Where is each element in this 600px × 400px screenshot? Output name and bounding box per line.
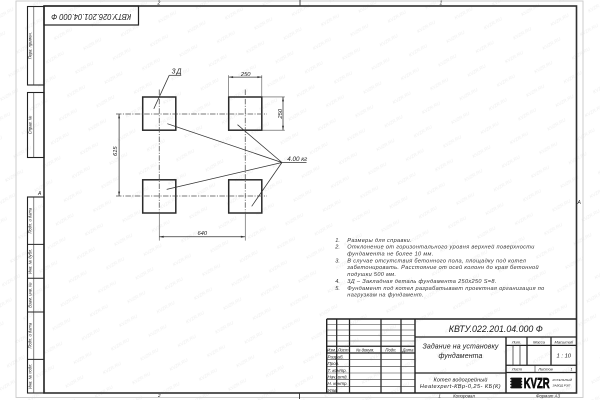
svg-text:Изм.: Изм. (327, 348, 336, 353)
svg-text:Лит.: Лит. (511, 339, 521, 344)
svg-text:№ докум.: № докум. (356, 348, 374, 353)
svg-text:Копировал: Копировал (453, 393, 475, 398)
svg-text:В случае отсутствия бетонного: В случае отсутствия бетонного пола, площ… (347, 258, 527, 264)
svg-text:KVZR: KVZR (524, 376, 550, 392)
svg-text:1 : 10: 1 : 10 (557, 354, 572, 360)
svg-text:2: 2 (157, 393, 161, 398)
svg-text:3Д – Закладная деталь фундамен: 3Д – Закладная деталь фундамента 250х250… (347, 279, 496, 285)
svg-text:Подп. и дата: Подп. и дата (28, 322, 33, 348)
svg-text:250: 250 (240, 72, 251, 78)
svg-text:КОТЕЛЬНЫЙ: КОТЕЛЬНЫЙ (553, 378, 573, 382)
svg-text:фундамента: фундамента (439, 352, 483, 360)
svg-text:Подп.: Подп. (385, 348, 396, 353)
svg-text:1: 1 (440, 1, 443, 7)
svg-text:Формат А3: Формат А3 (536, 393, 561, 398)
svg-text:3Д: 3Д (172, 68, 183, 75)
svg-text:фундамента не более 10 мм.: фундамента не более 10 мм. (347, 252, 433, 258)
svg-text:2: 2 (157, 1, 161, 7)
svg-text:Дата: Дата (401, 348, 414, 353)
svg-text:А: А (577, 200, 582, 206)
svg-text:Лист: Лист (337, 348, 349, 353)
svg-text:Котел водогрейный: Котел водогрейный (433, 376, 487, 383)
svg-text:Т. контр.: Т. контр. (328, 368, 347, 373)
svg-text:Пров.: Пров. (328, 361, 340, 366)
svg-text:Масштаб: Масштаб (554, 339, 573, 344)
svg-text:нагрузкам на фундамент.: нагрузкам на фундамент. (347, 293, 424, 299)
svg-text:4.00 кг: 4.00 кг (287, 156, 307, 163)
svg-text:Фундамент под котел разрабатыв: Фундамент под котел разрабатывает проект… (347, 286, 544, 292)
svg-text:Листов: Листов (537, 367, 553, 372)
svg-text:забетонировать. Расстояние от: забетонировать. Расстояние от осей колон… (346, 264, 539, 271)
svg-text:КВТУ.022.201.04.000 Ф: КВТУ.022.201.04.000 Ф (449, 324, 543, 334)
svg-text:Утв.: Утв. (328, 388, 338, 393)
svg-text:1.: 1. (335, 238, 340, 244)
svg-text:ЗАВОД РЭП: ЗАВОД РЭП (553, 384, 572, 388)
svg-text:5.: 5. (335, 286, 340, 292)
svg-text:Подп. и дата: Подп. и дата (28, 207, 33, 233)
svg-text:Взам. инв. №: Взам. инв. № (28, 282, 33, 308)
svg-text:Масса: Масса (533, 339, 546, 344)
svg-text:Heatexpert-КВр-0,25- КБ(К): Heatexpert-КВр-0,25- КБ(К) (420, 384, 501, 390)
svg-text:Задание на установку: Задание на установку (422, 342, 498, 350)
svg-text:3.: 3. (335, 258, 340, 264)
svg-text:Нач. отд.: Нач. отд. (328, 375, 348, 380)
svg-text:250: 250 (278, 108, 284, 119)
svg-text:Размеры для справки.: Размеры для справки. (347, 238, 412, 244)
svg-text:подушки 500 мм.: подушки 500 мм. (347, 272, 396, 278)
svg-text:Инв. № подл.: Инв. № подл. (28, 363, 33, 388)
svg-text:640: 640 (197, 231, 207, 237)
svg-text:615: 615 (113, 146, 119, 156)
svg-text:Отклонение от горизонтального: Отклонение от горизонтального уровня вер… (347, 244, 534, 251)
svg-text:1: 1 (570, 367, 572, 372)
svg-text:КВТУ.026.201.04.000 Ф: КВТУ.026.201.04.000 Ф (51, 12, 131, 21)
svg-text:Н. контр.: Н. контр. (328, 381, 348, 386)
svg-text:Перв. примен.: Перв. примен. (28, 32, 33, 59)
svg-text:Инв. № дубл.: Инв. № дубл. (28, 249, 33, 274)
svg-text:2.: 2. (334, 245, 340, 251)
svg-text:Разраб.: Разраб. (328, 355, 344, 360)
svg-text:Справ. №: Справ. № (28, 115, 33, 134)
svg-text:А: А (37, 191, 42, 197)
svg-text:4.: 4. (335, 279, 340, 285)
svg-text:Лист: Лист (511, 367, 523, 372)
